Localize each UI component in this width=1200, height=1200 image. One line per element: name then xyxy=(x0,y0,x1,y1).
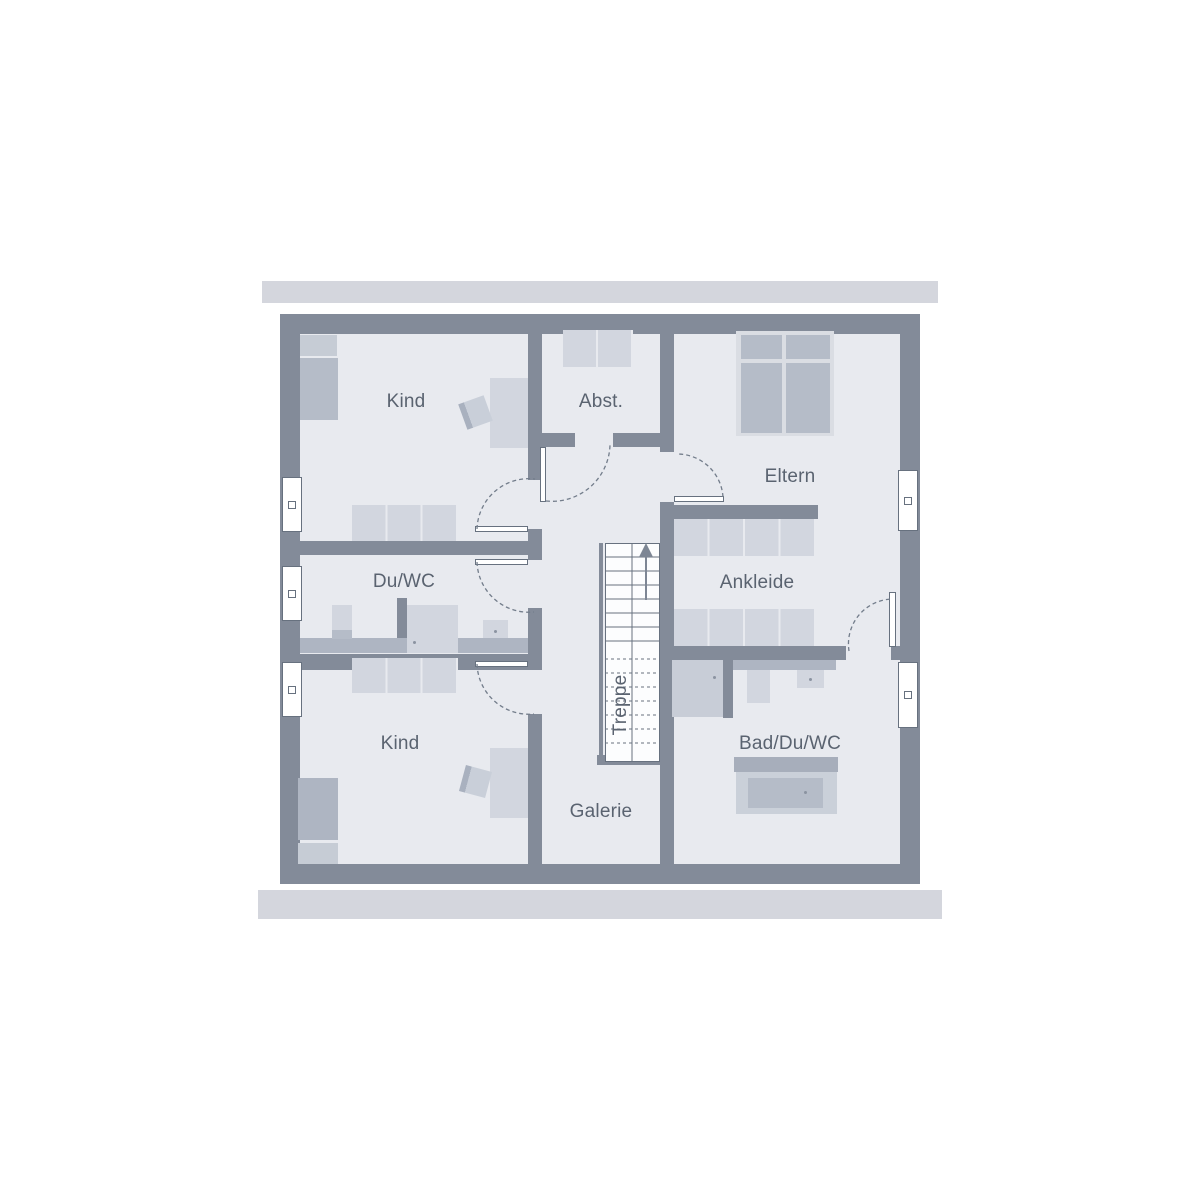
door-swing-arc xyxy=(678,454,723,497)
room-label-duwc: Du/WC xyxy=(373,571,435,593)
door-swing-arc xyxy=(848,599,892,651)
door-swing-arc xyxy=(477,562,534,612)
room-label-kind-bottom: Kind xyxy=(381,733,420,755)
floor-plan: Kind Abst. Eltern Du/WC Ankleide Treppe … xyxy=(0,0,1200,1200)
room-label-abst: Abst. xyxy=(579,391,623,413)
room-label-galerie: Galerie xyxy=(570,801,633,823)
plan-linework xyxy=(0,0,1200,1200)
room-label-kind-top: Kind xyxy=(387,391,426,413)
door-swing-arc xyxy=(477,479,535,529)
room-label-bad: Bad/Du/WC xyxy=(739,733,841,755)
door-swing-arc xyxy=(477,664,534,714)
room-label-treppe: Treppe xyxy=(610,675,632,736)
room-label-eltern: Eltern xyxy=(765,466,816,488)
door-swing-arc xyxy=(546,445,610,501)
room-label-ankleide: Ankleide xyxy=(720,572,794,594)
